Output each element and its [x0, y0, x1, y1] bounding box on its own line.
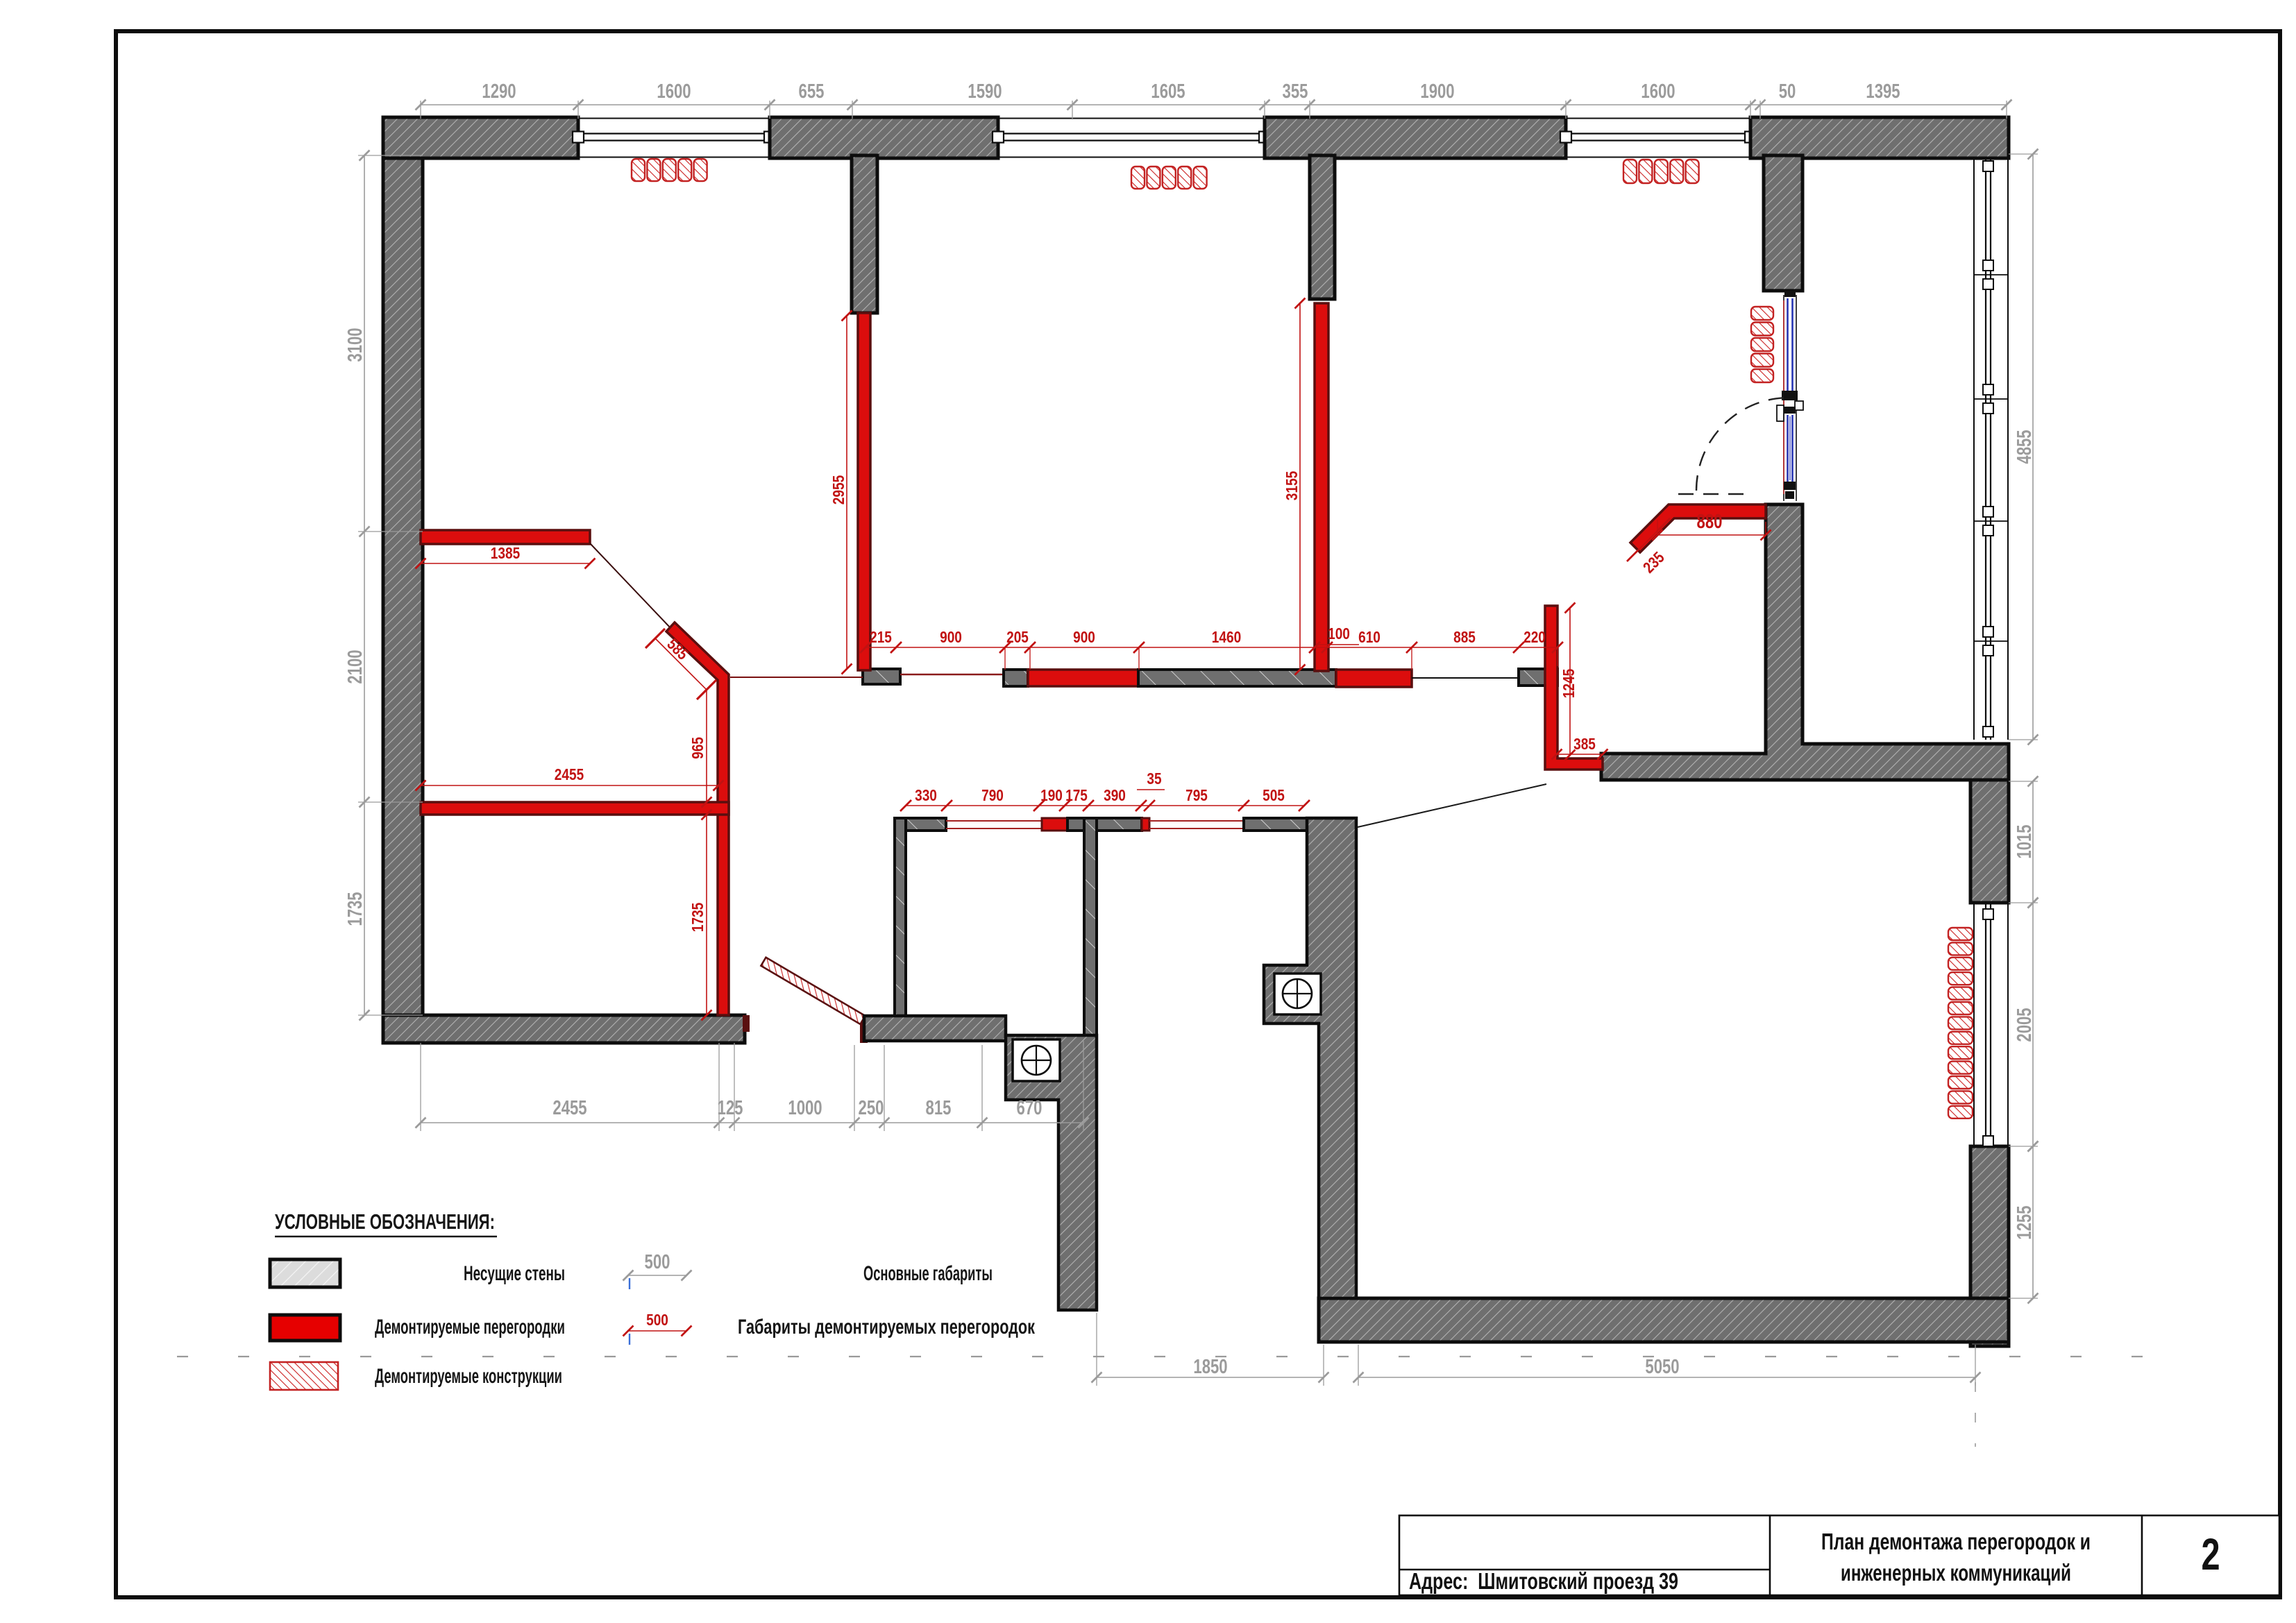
- svg-text:1735: 1735: [344, 892, 366, 926]
- svg-text:1900: 1900: [1420, 80, 1454, 103]
- svg-text:Габариты демонтируемых перегор: Габариты демонтируемых перегородок: [738, 1316, 1036, 1339]
- svg-text:355: 355: [1283, 80, 1308, 103]
- svg-text:885: 885: [1453, 628, 1476, 646]
- svg-text:1290: 1290: [482, 80, 516, 103]
- svg-text:План демонтажа перегородок и: План демонтажа перегородок и: [1821, 1529, 2091, 1554]
- svg-text:инженерных коммуникаций: инженерных коммуникаций: [1841, 1560, 2071, 1586]
- svg-text:1460: 1460: [1212, 628, 1241, 646]
- svg-text:3155: 3155: [1283, 471, 1301, 501]
- svg-text:655: 655: [799, 80, 825, 103]
- svg-text:1600: 1600: [1641, 80, 1675, 103]
- svg-text:790: 790: [981, 786, 1004, 804]
- svg-text:2455: 2455: [552, 1097, 586, 1119]
- svg-text:125: 125: [718, 1097, 743, 1119]
- svg-text:4855: 4855: [2014, 430, 2036, 464]
- svg-text:3100: 3100: [344, 328, 366, 362]
- svg-text:220: 220: [1523, 628, 1546, 646]
- svg-text:500: 500: [646, 1311, 668, 1329]
- svg-text:2455: 2455: [555, 765, 584, 783]
- svg-text:1605: 1605: [1151, 80, 1185, 103]
- svg-text:УСЛОВНЫЕ ОБОЗНАЧЕНИЯ:: УСЛОВНЫЕ ОБОЗНАЧЕНИЯ:: [275, 1209, 495, 1234]
- svg-text:610: 610: [1358, 628, 1381, 646]
- svg-text:815: 815: [926, 1097, 952, 1119]
- svg-text:190: 190: [1040, 786, 1063, 804]
- svg-text:Демонтируемые конструкции: Демонтируемые конструкции: [375, 1365, 562, 1388]
- svg-text:1735: 1735: [689, 903, 707, 933]
- svg-text:880: 880: [1697, 511, 1723, 533]
- svg-text:1850: 1850: [1193, 1356, 1227, 1378]
- svg-text:1000: 1000: [788, 1097, 822, 1119]
- svg-text:50: 50: [1779, 80, 1796, 103]
- svg-text:1395: 1395: [1866, 80, 1900, 103]
- svg-text:670: 670: [1017, 1097, 1043, 1119]
- svg-text:1590: 1590: [968, 80, 1002, 103]
- svg-text:505: 505: [1263, 786, 1285, 804]
- svg-text:385: 385: [1573, 735, 1596, 753]
- svg-text:215: 215: [870, 628, 892, 646]
- svg-text:900: 900: [940, 628, 962, 646]
- svg-text:500: 500: [645, 1251, 670, 1273]
- svg-text:Адрес: Шмитовский проезд 39: Адрес: Шмитовский проезд 39: [1409, 1568, 1678, 1594]
- svg-text:2005: 2005: [2014, 1008, 2036, 1042]
- svg-text:5050: 5050: [1645, 1356, 1679, 1378]
- svg-text:1015: 1015: [2014, 824, 2036, 858]
- svg-text:965: 965: [689, 737, 707, 759]
- svg-text:2100: 2100: [344, 649, 366, 683]
- svg-text:100: 100: [1328, 624, 1350, 643]
- svg-text:250: 250: [859, 1097, 884, 1119]
- svg-text:330: 330: [915, 786, 937, 804]
- svg-text:795: 795: [1185, 786, 1208, 804]
- svg-text:Демонтируемые перегородки: Демонтируемые перегородки: [375, 1316, 565, 1339]
- svg-text:2: 2: [2201, 1529, 2220, 1579]
- svg-text:390: 390: [1104, 786, 1126, 804]
- svg-text:175: 175: [1065, 786, 1088, 804]
- svg-text:1255: 1255: [2014, 1205, 2036, 1239]
- svg-text:205: 205: [1006, 628, 1029, 646]
- svg-text:900: 900: [1073, 628, 1095, 646]
- svg-text:1385: 1385: [491, 544, 521, 562]
- svg-text:2955: 2955: [829, 475, 847, 505]
- svg-text:1245: 1245: [1560, 669, 1578, 699]
- svg-text:1600: 1600: [657, 80, 691, 103]
- svg-text:35: 35: [1147, 770, 1161, 788]
- svg-text:Несущие стены: Несущие стены: [464, 1262, 565, 1285]
- svg-text:Основные габариты: Основные габариты: [863, 1262, 993, 1285]
